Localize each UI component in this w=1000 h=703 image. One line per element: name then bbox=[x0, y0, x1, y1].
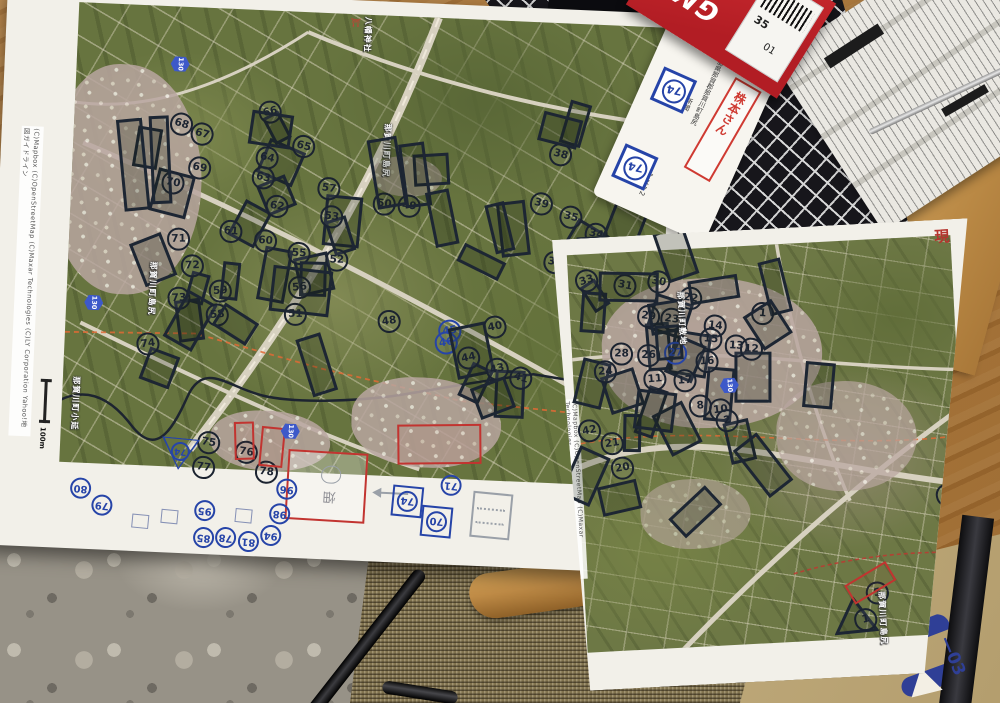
margin-circled-number: 80 bbox=[69, 477, 92, 500]
red-pen-outline bbox=[234, 421, 255, 460]
parcel-outline bbox=[802, 361, 836, 409]
parcel-outline bbox=[633, 389, 678, 434]
margin-circled-number: 94 bbox=[259, 524, 282, 547]
circled-number: 74 bbox=[396, 490, 419, 513]
sketch-square bbox=[160, 509, 178, 525]
map-place-label: 那賀川町小延 bbox=[69, 376, 82, 430]
map-place-label: 八幡神社 bbox=[361, 17, 374, 53]
red-pen-outline bbox=[397, 424, 481, 465]
map-place-label: 那賀川町島尻 bbox=[146, 261, 159, 315]
circled-number: 74 bbox=[621, 154, 649, 182]
circled-number: 74 bbox=[660, 77, 688, 105]
map-sheet-right: (C)Mapbox (C)OpenStreetMap (C)Maxar Tech… bbox=[552, 218, 991, 691]
barcode bbox=[760, 0, 815, 33]
circled-number: 70 bbox=[425, 510, 448, 533]
photo-of-annotated-field-maps: —03 (C)Mapbox (C)OpenStreetMap (C)Maxar … bbox=[0, 0, 1000, 703]
margin-circled-number: 95 bbox=[193, 499, 216, 522]
label-number: 35 bbox=[752, 13, 772, 32]
map-marker: 71 bbox=[167, 228, 190, 251]
margin-circled-number: 85 bbox=[192, 526, 215, 549]
parcel-outline bbox=[149, 115, 173, 204]
sketch-square bbox=[131, 513, 149, 529]
field-note-label: 畑 bbox=[322, 488, 336, 508]
margin-square-number: 70 bbox=[420, 505, 454, 539]
margin-circled-number: 79 bbox=[90, 494, 113, 517]
map-copyright: (C)Mapbox (C)OpenStreetMap (C)Maxar Tech… bbox=[8, 126, 44, 437]
parcel-outline bbox=[248, 110, 295, 150]
red-corner-stamp: 現 bbox=[934, 225, 950, 247]
pencil-sketch bbox=[321, 465, 342, 484]
parcel-outline bbox=[598, 272, 659, 303]
scale-label: 100m bbox=[38, 427, 47, 449]
scale-bar bbox=[43, 379, 48, 423]
shrine-icon: ⛩ bbox=[350, 18, 361, 27]
margin-circled-number: 81 bbox=[237, 530, 260, 553]
margin-circled-number: 78 bbox=[214, 526, 237, 549]
parcel-outline bbox=[269, 265, 334, 317]
label-number: 01 bbox=[761, 42, 778, 58]
scribble bbox=[477, 507, 505, 512]
pencil-note-box bbox=[469, 491, 513, 541]
scribble bbox=[476, 521, 504, 526]
sketch-square bbox=[234, 508, 252, 524]
map-marker: 28 bbox=[610, 342, 633, 365]
name-label: 株本さん bbox=[712, 89, 751, 139]
gmb-logo: GMB bbox=[647, 0, 725, 28]
margin-square-number: 74 bbox=[390, 484, 424, 518]
